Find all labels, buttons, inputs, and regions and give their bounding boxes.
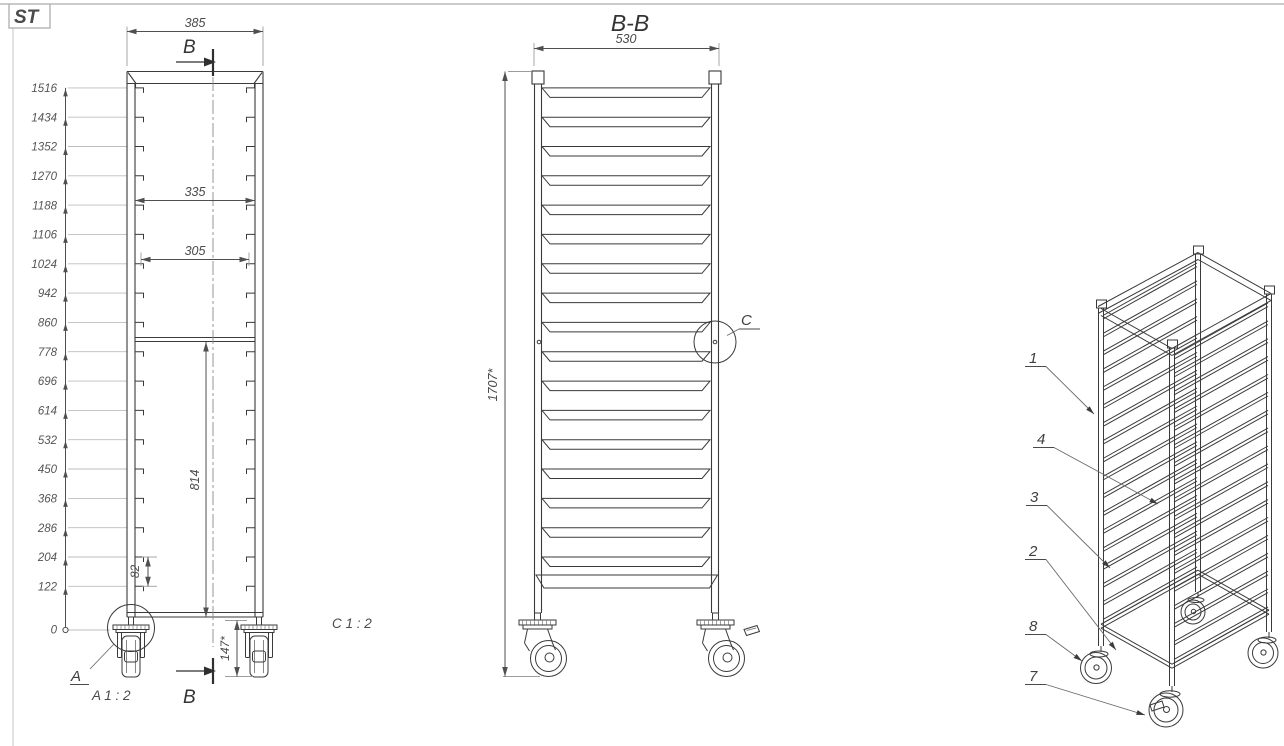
section-dimensions: 530 1707*	[486, 32, 719, 677]
section-casters	[519, 620, 760, 677]
section-b-label-bottom: B	[183, 687, 196, 708]
section-b-label-top: B	[183, 37, 196, 58]
isometric-view: 1 4 3 2 8 7	[1025, 246, 1278, 727]
ladder-value: 778	[38, 347, 58, 359]
ladder-value: 450	[38, 464, 58, 476]
callout-4: 4	[1037, 431, 1045, 448]
rivet-left	[537, 340, 541, 344]
dim-814: 814	[188, 470, 202, 491]
ladder-value: 1024	[31, 259, 57, 271]
front-frame	[127, 72, 263, 618]
ladder-leader-lines	[68, 88, 127, 630]
detail-a-scale: A 1 : 2	[91, 688, 131, 703]
detail-c-circle	[694, 321, 736, 363]
ladder-value: 532	[38, 435, 58, 447]
dim-1707: 1707*	[486, 368, 500, 402]
brake-lever	[744, 626, 760, 636]
ladder-value: 1516	[31, 83, 57, 95]
ladder-value: 860	[38, 318, 58, 330]
callout-7: 7	[1029, 668, 1038, 685]
detail-a-label: A	[70, 668, 81, 685]
ladder-value: 942	[38, 288, 58, 300]
detail-a: A A 1 : 2	[70, 605, 155, 704]
callout-3: 3	[1030, 489, 1039, 506]
dim-305: 305	[185, 244, 206, 258]
ladder-value: 1434	[31, 112, 57, 124]
section-rails	[542, 88, 710, 567]
ladder-value: 1188	[32, 200, 57, 212]
dim-147: 147*	[218, 636, 232, 661]
dim-385: 385	[185, 16, 206, 30]
ladder-value: 1352	[31, 142, 57, 154]
iso-callouts: 1 4 3 2 8 7	[1025, 350, 1158, 715]
section-b-marks: B B	[176, 37, 216, 708]
ladder-value: 1270	[31, 171, 57, 183]
front-view: 1516 1434 1352 1270 1188 1106 1024 942 8…	[31, 16, 372, 708]
dim-530: 530	[616, 32, 637, 46]
ladder-value: 204	[37, 552, 57, 564]
ladder-value: 1106	[32, 230, 57, 242]
front-casters	[113, 617, 277, 677]
iso-top-bars-front	[1098, 253, 1198, 356]
callout-2: 2	[1028, 543, 1038, 560]
detail-a-circle	[108, 605, 155, 652]
callout-8: 8	[1029, 618, 1038, 635]
section-view: B-B	[486, 10, 760, 677]
detail-c-label: C	[741, 312, 752, 329]
callout-1: 1	[1029, 350, 1037, 367]
technical-drawing-sheet: ST	[0, 0, 1284, 746]
ladder-value: 286	[37, 523, 58, 535]
front-rail-ticks	[135, 88, 255, 591]
detail-c: C	[694, 312, 760, 363]
ladder-value: 0	[51, 625, 58, 637]
logo-box: ST	[9, 4, 50, 28]
detail-c-scale-note: C 1 : 2	[332, 616, 372, 631]
logo-text: ST	[14, 7, 40, 28]
ladder-value: 696	[38, 376, 58, 388]
iso-brake-lever	[1150, 701, 1164, 711]
ladder-labels: 1516 1434 1352 1270 1188 1106 1024 942 8…	[31, 83, 57, 637]
dim-82: 82	[128, 565, 142, 579]
ladder-dimension-chain	[63, 88, 68, 633]
front-dimensions: 385 335 305 814 82 147*	[127, 16, 263, 677]
ladder-value: 122	[38, 581, 58, 593]
ladder-value: 368	[38, 494, 58, 506]
dim-335: 335	[185, 185, 206, 199]
sheet-frame	[0, 4, 1284, 746]
drawing-svg: ST	[0, 0, 1284, 746]
ladder-value: 614	[38, 406, 57, 418]
rivet-right	[713, 340, 717, 344]
